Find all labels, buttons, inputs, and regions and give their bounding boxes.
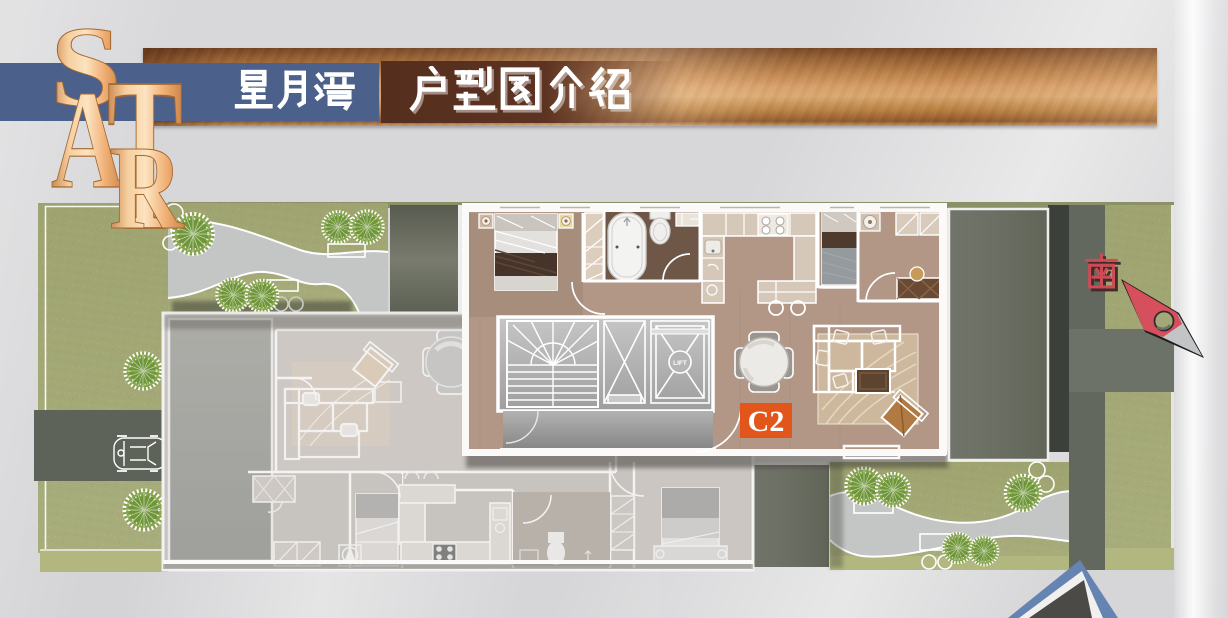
svg-text:LIFT: LIFT <box>673 360 687 367</box>
svg-text:C2: C2 <box>748 405 785 438</box>
svg-text:R: R <box>109 121 185 240</box>
